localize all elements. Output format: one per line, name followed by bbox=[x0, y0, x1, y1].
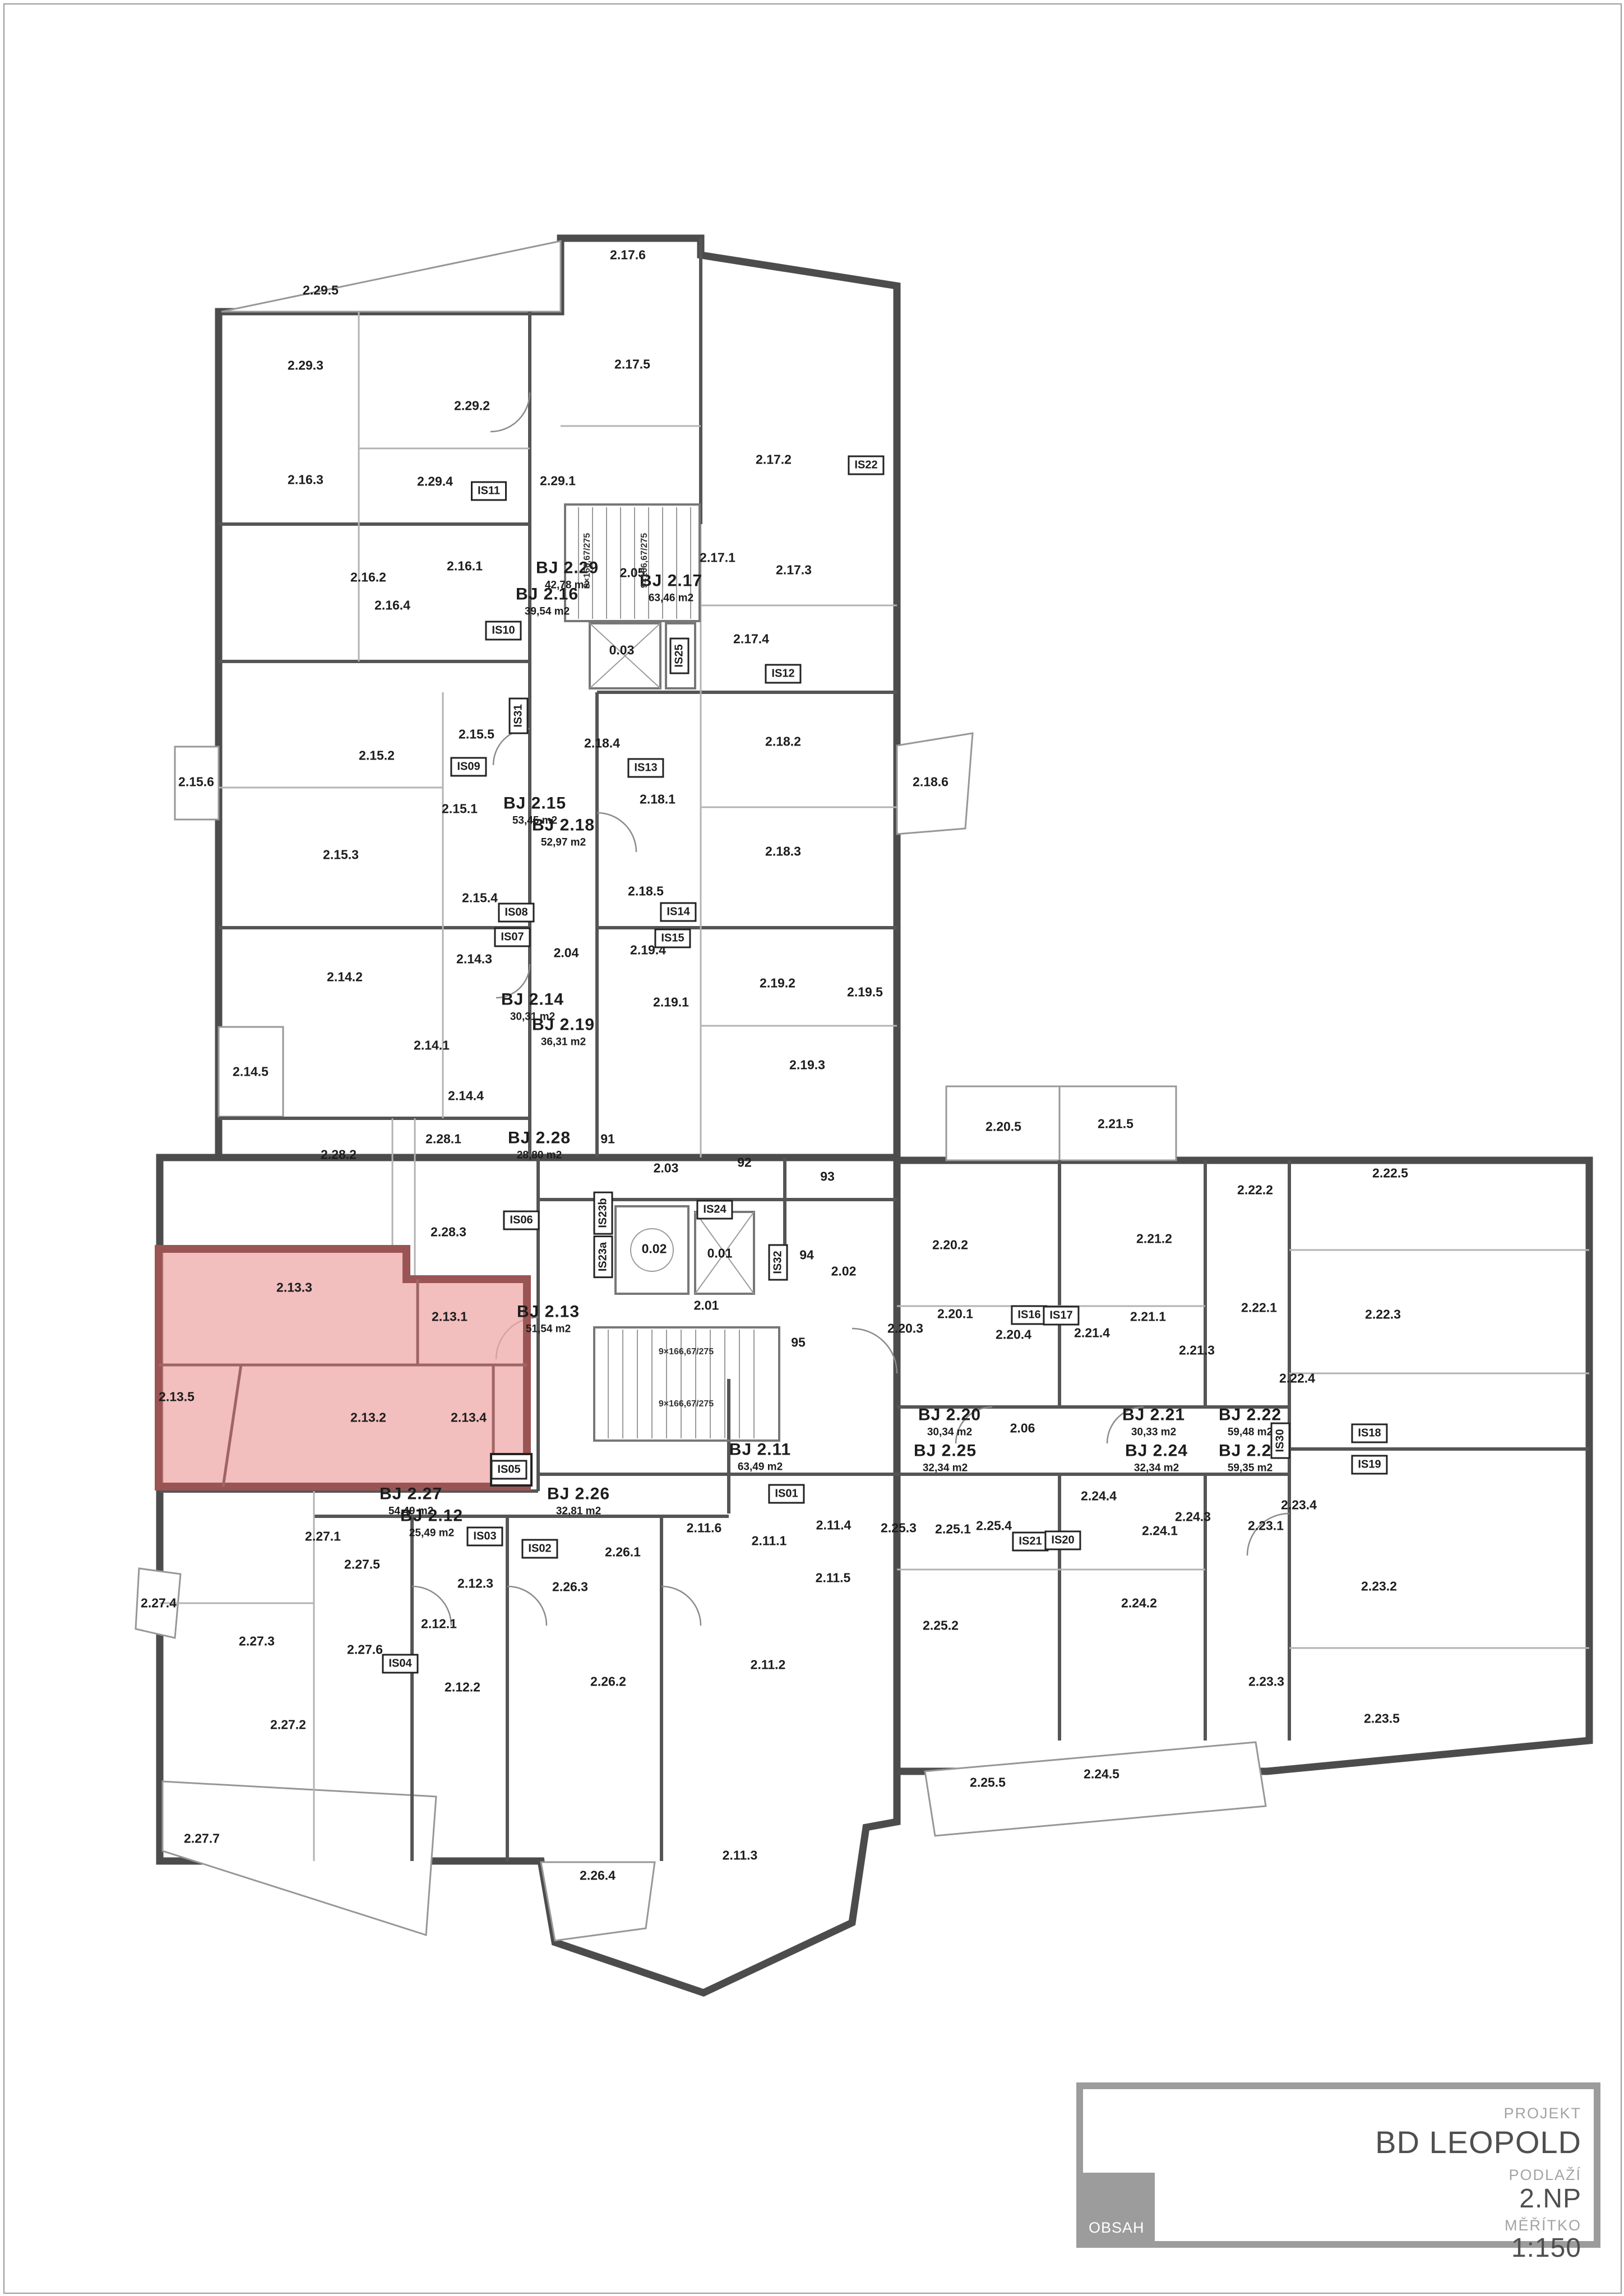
unit-label-bj-2-19: BJ 2.1936,31 m2 bbox=[532, 1014, 595, 1048]
room-label-0-02: 0.02 bbox=[642, 1242, 667, 1257]
room-label-2-13-1: 2.13.1 bbox=[432, 1309, 468, 1325]
exterior-walls bbox=[160, 238, 1589, 1993]
room-label-2-18-4: 2.18.4 bbox=[584, 736, 620, 751]
room-label-2-20-2: 2.20.2 bbox=[932, 1238, 968, 1253]
room-label-91: 91 bbox=[600, 1132, 615, 1147]
shaft-label-is12: IS12 bbox=[765, 664, 801, 684]
room-label-2-26-1: 2.26.1 bbox=[605, 1545, 641, 1560]
room-label-2-24-4: 2.24.4 bbox=[1081, 1489, 1117, 1504]
room-label-2-19-1: 2.19.1 bbox=[653, 995, 689, 1010]
room-label-2-15-5: 2.15.5 bbox=[459, 727, 494, 742]
room-label-2-29-3: 2.29.3 bbox=[288, 358, 323, 373]
obsah-tab[interactable]: OBSAH bbox=[1083, 2173, 1155, 2241]
room-label-94: 94 bbox=[799, 1248, 814, 1263]
room-label-2-14-5: 2.14.5 bbox=[233, 1064, 269, 1080]
room-label-2-17-6: 2.17.6 bbox=[610, 248, 646, 263]
room-label-2-19-2: 2.19.2 bbox=[760, 976, 795, 991]
room-label-2-20-3: 2.20.3 bbox=[887, 1321, 923, 1336]
room-label-2-27-5: 2.27.5 bbox=[344, 1557, 380, 1572]
room-label-2-11-2: 2.11.2 bbox=[751, 1658, 786, 1673]
stair-dimension-note-3: 9×166,67/275 bbox=[659, 1347, 714, 1357]
room-label-2-27-3: 2.27.3 bbox=[239, 1634, 275, 1649]
room-label-2-25-2: 2.25.2 bbox=[923, 1618, 959, 1633]
project-name: BD LEOPOLD bbox=[1375, 2124, 1581, 2160]
unit-label-bj-2-12: BJ 2.1225,49 m2 bbox=[400, 1505, 463, 1539]
shaft-label-is19: IS19 bbox=[1351, 1455, 1387, 1475]
room-label-2-11-4: 2.11.4 bbox=[816, 1518, 852, 1533]
highlighted-unit-bj-2-13[interactable] bbox=[159, 1249, 531, 1487]
room-label-2-22-2: 2.22.2 bbox=[1237, 1183, 1273, 1198]
shaft-label-is24: IS24 bbox=[696, 1200, 733, 1220]
room-label-2-23-4: 2.23.4 bbox=[1281, 1498, 1317, 1513]
room-label-2-12-1: 2.12.1 bbox=[421, 1617, 457, 1632]
room-label-2-13-4: 2.13.4 bbox=[451, 1410, 487, 1425]
stair-dimension-note-1: 9×166,67/275 bbox=[582, 533, 593, 588]
room-label-2-16-4: 2.16.4 bbox=[374, 598, 410, 613]
room-label-2-22-4: 2.22.4 bbox=[1279, 1371, 1315, 1386]
stair-dimension-note-4: 9×166,67/275 bbox=[659, 1399, 714, 1409]
shaft-label-is30: IS30 bbox=[1271, 1422, 1290, 1459]
room-label-2-11-6: 2.11.6 bbox=[687, 1521, 722, 1536]
room-label-2-29-4: 2.29.4 bbox=[417, 474, 453, 489]
shaft-label-is17: IS17 bbox=[1043, 1306, 1079, 1326]
room-label-2-21-4: 2.21.4 bbox=[1074, 1326, 1110, 1341]
room-label-2-23-3: 2.23.3 bbox=[1248, 1674, 1284, 1689]
room-label-2-18-6: 2.18.6 bbox=[913, 775, 949, 790]
room-label-2-25-4: 2.25.4 bbox=[976, 1519, 1012, 1534]
unit-label-bj-2-25: BJ 2.2532,34 m2 bbox=[914, 1440, 977, 1474]
room-label-2-03: 2.03 bbox=[654, 1161, 679, 1176]
room-label-2-17-5: 2.17.5 bbox=[614, 357, 650, 372]
room-label-2-27-2: 2.27.2 bbox=[270, 1718, 306, 1733]
shaft-label-is04: IS04 bbox=[382, 1654, 418, 1674]
shaft-label-is31: IS31 bbox=[509, 697, 529, 734]
shaft-label-is23a: IS23a bbox=[594, 1235, 613, 1278]
room-label-2-27-4: 2.27.4 bbox=[141, 1596, 177, 1611]
stair-dimension-note-2: 9×166,67/275 bbox=[640, 533, 650, 588]
room-label-2-18-1: 2.18.1 bbox=[640, 792, 675, 807]
room-label-2-13-5: 2.13.5 bbox=[159, 1390, 195, 1405]
room-label-2-20-5: 2.20.5 bbox=[985, 1119, 1021, 1135]
room-label-2-22-5: 2.22.5 bbox=[1372, 1166, 1408, 1181]
room-label-2-24-2: 2.24.2 bbox=[1121, 1596, 1157, 1611]
room-label-93: 93 bbox=[820, 1169, 835, 1184]
room-label-2-29-1: 2.29.1 bbox=[540, 474, 576, 489]
room-label-2-17-1: 2.17.1 bbox=[700, 550, 735, 566]
room-label-2-16-3: 2.16.3 bbox=[288, 473, 323, 488]
room-label-2-27-1: 2.27.1 bbox=[305, 1529, 341, 1544]
room-label-2-15-1: 2.15.1 bbox=[442, 802, 478, 817]
shaft-label-is14: IS14 bbox=[660, 902, 696, 922]
shaft-label-is32: IS32 bbox=[769, 1244, 788, 1280]
shaft-label-is15: IS15 bbox=[654, 929, 691, 948]
shaft-label-is09: IS09 bbox=[450, 757, 487, 777]
room-label-2-23-1: 2.23.1 bbox=[1248, 1519, 1284, 1534]
shaft-label-is02: IS02 bbox=[521, 1539, 558, 1559]
room-label-2-13-2: 2.13.2 bbox=[350, 1410, 386, 1425]
floor-value: 2.NP bbox=[1519, 2184, 1581, 2214]
shaft-label-is20: IS20 bbox=[1044, 1531, 1081, 1550]
room-label-2-04: 2.04 bbox=[554, 946, 579, 961]
room-label-2-20-1: 2.20.1 bbox=[937, 1307, 973, 1322]
room-label-2-18-2: 2.18.2 bbox=[765, 734, 801, 749]
shaft-label-is03: IS03 bbox=[466, 1527, 503, 1547]
room-label-2-23-2: 2.23.2 bbox=[1361, 1579, 1397, 1594]
room-label-2-29-5: 2.29.5 bbox=[303, 283, 339, 298]
shaft-label-is21: IS21 bbox=[1012, 1532, 1048, 1552]
room-label-2-21-2: 2.21.2 bbox=[1136, 1232, 1172, 1247]
room-label-2-11-3: 2.11.3 bbox=[723, 1848, 758, 1863]
room-label-2-27-6: 2.27.6 bbox=[347, 1642, 383, 1658]
shaft-label-is22: IS22 bbox=[848, 456, 884, 475]
shaft-label-is25: IS25 bbox=[670, 637, 690, 674]
room-label-2-14-3: 2.14.3 bbox=[456, 952, 492, 967]
room-label-2-22-1: 2.22.1 bbox=[1241, 1300, 1277, 1316]
shaft-label-is05: IS05 bbox=[491, 1460, 527, 1480]
room-label-2-29-2: 2.29.2 bbox=[454, 399, 490, 414]
room-label-2-26-3: 2.26.3 bbox=[552, 1580, 588, 1595]
floor-plan-sheet: BJ 2.2942,78 m2BJ 2.1639,54 m2BJ 2.1763,… bbox=[0, 0, 1624, 2296]
room-label-2-16-2: 2.16.2 bbox=[350, 570, 386, 585]
project-caption: PROJEKT bbox=[1503, 2105, 1581, 2122]
room-label-2-19-3: 2.19.3 bbox=[789, 1058, 825, 1073]
room-label-2-22-3: 2.22.3 bbox=[1365, 1307, 1401, 1322]
room-label-2-25-1: 2.25.1 bbox=[935, 1522, 971, 1537]
room-label-2-27-7: 2.27.7 bbox=[184, 1831, 220, 1846]
unit-label-bj-2-26: BJ 2.2632,81 m2 bbox=[547, 1483, 610, 1517]
unit-label-bj-2-21: BJ 2.2130,33 m2 bbox=[1122, 1404, 1185, 1438]
room-label-2-12-3: 2.12.3 bbox=[457, 1576, 493, 1591]
unit-label-bj-2-20: BJ 2.2030,34 m2 bbox=[918, 1404, 981, 1438]
room-label-2-26-2: 2.26.2 bbox=[590, 1674, 626, 1689]
room-label-2-17-2: 2.17.2 bbox=[756, 452, 792, 467]
shaft-label-is13: IS13 bbox=[627, 758, 664, 778]
room-label-2-15-3: 2.15.3 bbox=[323, 848, 359, 863]
unit-label-bj-2-13: BJ 2.1351,54 m2 bbox=[517, 1301, 580, 1335]
room-label-2-24-1: 2.24.1 bbox=[1142, 1524, 1178, 1539]
room-label-2-16-1: 2.16.1 bbox=[447, 559, 483, 574]
room-label-0-01: 0.01 bbox=[707, 1246, 733, 1261]
room-label-2-26-4: 2.26.4 bbox=[580, 1868, 616, 1883]
room-label-2-17-4: 2.17.4 bbox=[733, 632, 769, 647]
unit-label-bj-2-28: BJ 2.2828,80 m2 bbox=[508, 1127, 571, 1161]
room-label-2-24-5: 2.24.5 bbox=[1084, 1767, 1119, 1782]
room-label-2-25-5: 2.25.5 bbox=[970, 1775, 1006, 1790]
room-label-2-06: 2.06 bbox=[1010, 1421, 1035, 1436]
room-label-2-18-5: 2.18.5 bbox=[628, 884, 664, 899]
room-label-2-25-3: 2.25.3 bbox=[881, 1521, 917, 1536]
room-label-2-15-2: 2.15.2 bbox=[359, 748, 395, 763]
room-label-2-18-3: 2.18.3 bbox=[765, 844, 801, 859]
room-label-2-11-1: 2.11.1 bbox=[752, 1534, 787, 1549]
shaft-label-is08: IS08 bbox=[498, 903, 534, 923]
floor-plan-drawing bbox=[0, 0, 1624, 2296]
room-label-2-28-2: 2.28.2 bbox=[321, 1147, 357, 1163]
room-label-2-19-5: 2.19.5 bbox=[847, 985, 883, 1000]
shaft-label-is07: IS07 bbox=[494, 928, 530, 947]
room-label-2-14-2: 2.14.2 bbox=[327, 970, 363, 985]
room-label-92: 92 bbox=[737, 1155, 752, 1170]
unit-label-bj-2-24: BJ 2.2432,34 m2 bbox=[1125, 1440, 1188, 1474]
room-label-2-23-5: 2.23.5 bbox=[1364, 1711, 1400, 1726]
unit-label-bj-2-16: BJ 2.1639,54 m2 bbox=[516, 584, 579, 618]
unit-label-bj-2-18: BJ 2.1852,97 m2 bbox=[532, 814, 595, 849]
room-label-2-02: 2.02 bbox=[831, 1264, 857, 1279]
room-label-2-21-1: 2.21.1 bbox=[1130, 1309, 1166, 1325]
room-label-95: 95 bbox=[791, 1335, 806, 1350]
room-label-0-03: 0.03 bbox=[609, 643, 635, 658]
shaft-label-is18: IS18 bbox=[1351, 1424, 1387, 1443]
floor-caption: PODLAŽÍ bbox=[1509, 2167, 1581, 2183]
room-label-2-20-4: 2.20.4 bbox=[996, 1327, 1031, 1343]
room-label-2-15-6: 2.15.6 bbox=[178, 775, 214, 790]
room-label-2-15-4: 2.15.4 bbox=[462, 891, 498, 906]
unit-label-bj-2-11: BJ 2.1163,49 m2 bbox=[729, 1439, 791, 1473]
room-label-2-14-1: 2.14.1 bbox=[414, 1038, 450, 1053]
room-label-2-28-3: 2.28.3 bbox=[431, 1225, 466, 1240]
room-label-2-21-3: 2.21.3 bbox=[1179, 1343, 1215, 1358]
room-label-2-14-4: 2.14.4 bbox=[448, 1089, 484, 1104]
room-label-2-24-3: 2.24.3 bbox=[1175, 1510, 1211, 1525]
shaft-label-is11: IS11 bbox=[471, 482, 507, 501]
title-block: PROJEKT BD LEOPOLD PODLAŽÍ 2.NP MĚŘÍTKO … bbox=[1076, 2082, 1600, 2248]
room-label-2-12-2: 2.12.2 bbox=[445, 1680, 480, 1695]
scale-value: 1:150 bbox=[1511, 2233, 1581, 2263]
room-label-2-11-5: 2.11.5 bbox=[816, 1571, 851, 1586]
room-label-2-21-5: 2.21.5 bbox=[1098, 1117, 1133, 1132]
room-label-2-17-3: 2.17.3 bbox=[776, 563, 812, 578]
room-label-2-13-3: 2.13.3 bbox=[276, 1280, 312, 1295]
shaft-label-is01: IS01 bbox=[768, 1484, 804, 1504]
shaft-label-is16: IS16 bbox=[1011, 1306, 1047, 1325]
room-label-2-01: 2.01 bbox=[694, 1298, 719, 1313]
shaft-label-is10: IS10 bbox=[485, 621, 521, 641]
shaft-label-is23b: IS23b bbox=[594, 1191, 613, 1234]
shaft-label-is06: IS06 bbox=[503, 1211, 539, 1230]
scale-caption: MĚŘÍTKO bbox=[1505, 2217, 1581, 2234]
obsah-label: OBSAH bbox=[1089, 2219, 1145, 2237]
room-label-2-28-1: 2.28.1 bbox=[425, 1132, 461, 1147]
